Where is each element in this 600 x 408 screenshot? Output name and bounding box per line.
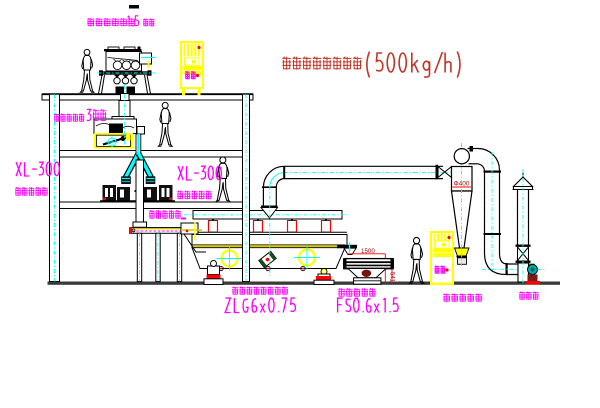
svg-text:1500: 1500 (361, 248, 375, 255)
svg-text:541: 541 (389, 272, 395, 283)
